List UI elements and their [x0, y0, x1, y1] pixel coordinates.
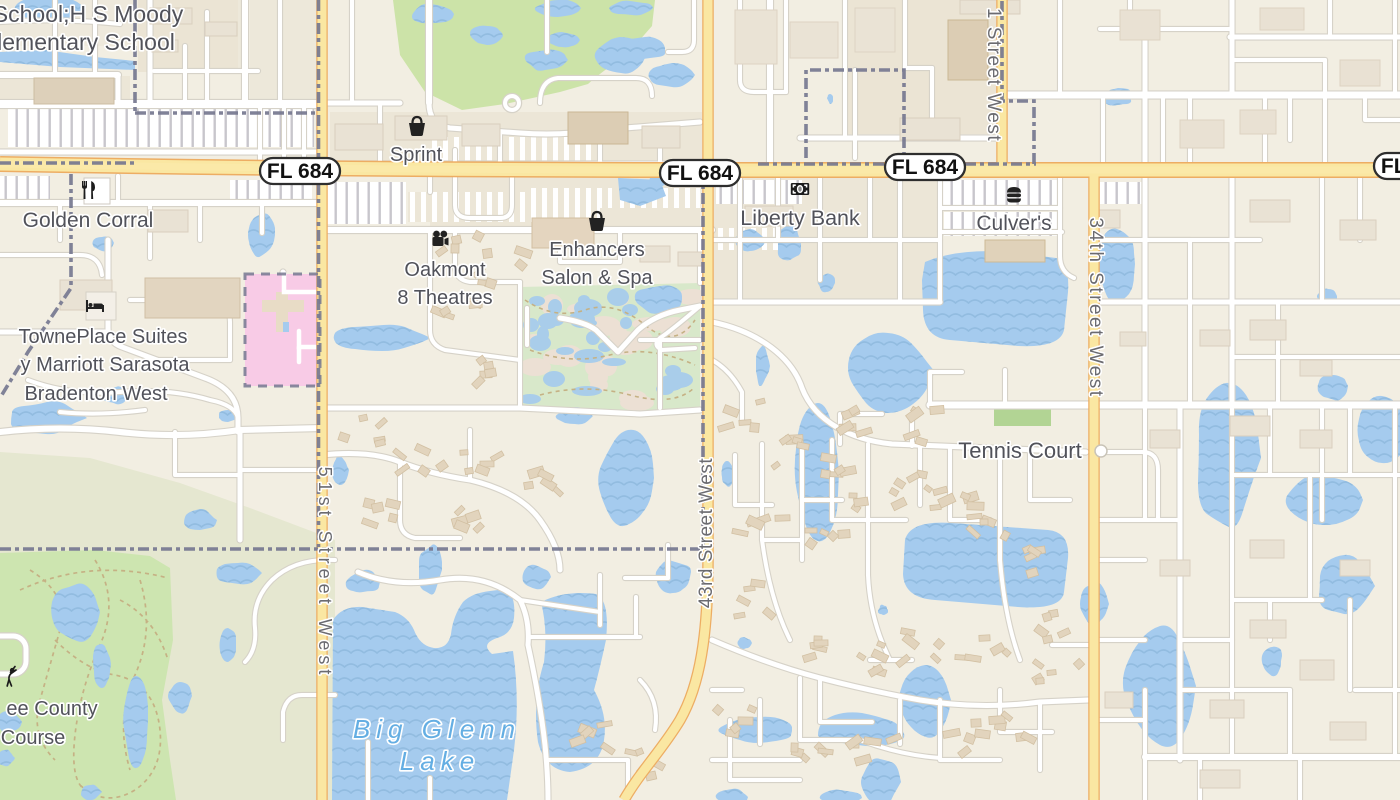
svg-text:8 Theatres: 8 Theatres — [397, 287, 492, 309]
svg-text:FL 684: FL 684 — [892, 156, 958, 179]
svg-text:Salon & Spa: Salon & Spa — [541, 267, 653, 289]
svg-text:1 Street West: 1 Street West — [983, 8, 1004, 142]
svg-text:Lake: Lake — [400, 746, 480, 776]
svg-text:34th Street West: 34th Street West — [1085, 217, 1106, 398]
svg-text:FL 684: FL 684 — [1381, 155, 1400, 178]
svg-text:Culver's: Culver's — [976, 212, 1051, 235]
svg-text:Liberty Bank: Liberty Bank — [740, 206, 860, 230]
svg-text:43rd Street West: 43rd Street West — [696, 458, 717, 608]
svg-text:Course: Course — [1, 727, 65, 749]
svg-text:Big Glenn: Big Glenn — [353, 714, 521, 744]
svg-text:Enhancers: Enhancers — [549, 239, 645, 261]
svg-text:51st Street West: 51st Street West — [315, 467, 335, 680]
svg-text:Sprint: Sprint — [390, 144, 443, 166]
svg-text:School;H S Moody: School;H S Moody — [0, 1, 184, 27]
svg-text:Oakmont: Oakmont — [404, 259, 486, 281]
svg-text:Tennis Court: Tennis Court — [958, 438, 1082, 463]
svg-text:Bradenton West: Bradenton West — [24, 383, 167, 405]
svg-text:lementary School: lementary School — [0, 29, 175, 55]
svg-text:y Marriott Sarasota: y Marriott Sarasota — [21, 354, 191, 376]
svg-text:ee County: ee County — [6, 698, 97, 720]
svg-text:FL 684: FL 684 — [667, 162, 733, 185]
svg-text:TownePlace Suites: TownePlace Suites — [19, 326, 188, 348]
svg-text:FL 684: FL 684 — [267, 160, 333, 183]
svg-text:Golden Corral: Golden Corral — [23, 209, 154, 232]
